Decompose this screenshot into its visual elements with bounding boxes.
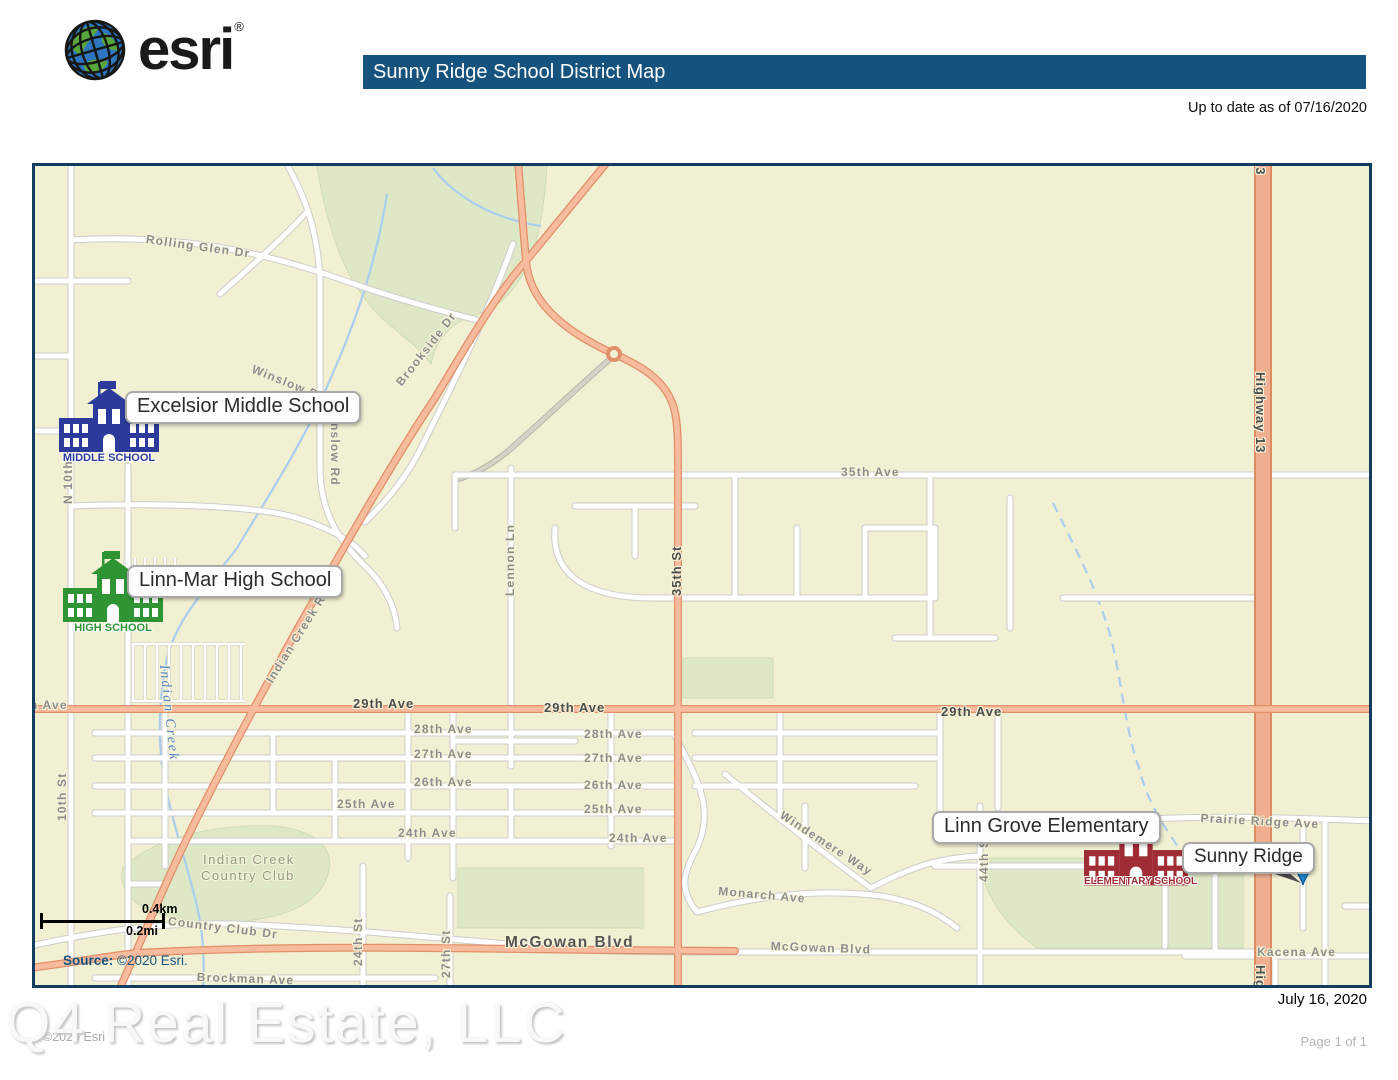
callout-linn-grove-elementary: Linn Grove Elementary <box>932 811 1161 844</box>
street-label: Kacena Ave <box>1257 945 1336 959</box>
esri-logo: esri® <box>60 12 360 88</box>
map-canvas: 29th AveRolling Glen DrWinslow RdWinslow… <box>32 163 1372 988</box>
street-label: 35th St <box>669 546 684 596</box>
street-label: 29th Ave <box>544 700 605 715</box>
watermark: Q4 Real Estate, LLC <box>6 990 567 1056</box>
street-label: Country Club <box>201 868 295 883</box>
street-label: 26th Ave <box>414 775 473 789</box>
street-label: Highway 13 <box>1253 965 1268 988</box>
street-label: Monarch Ave <box>718 884 807 906</box>
page-title: Sunny Ridge School District Map <box>363 55 1366 89</box>
street-label: 24th Ave <box>609 831 668 845</box>
scale-km-label: 0.4km <box>142 902 177 916</box>
callout-sunny-ridge: Sunny Ridge <box>1182 842 1315 874</box>
street-label: 29th Ave <box>353 696 414 711</box>
source-value: ©2020 Esri. <box>113 953 187 968</box>
street-label: 27th Ave <box>584 751 643 765</box>
street-label: 27th St <box>439 930 453 978</box>
street-label: Windemere Way <box>777 808 875 878</box>
street-label: 29th Ave <box>32 698 68 712</box>
title-bar: Sunny Ridge School District Map <box>363 55 1366 89</box>
updated-note: Up to date as of 07/16/2020 <box>1188 100 1367 116</box>
street-label: 25th Ave <box>584 802 643 816</box>
street-label: Brookside Dr <box>393 309 459 388</box>
street-label: Indian Creek <box>203 852 295 867</box>
street-label: Indian Creek Rd <box>263 585 333 685</box>
street-label: Highway 13 <box>1253 163 1268 176</box>
callout-excelsior-middle-school: Excelsior Middle School <box>125 391 361 424</box>
street-label: McGowan Blvd <box>771 939 872 956</box>
scale-bar-line <box>40 920 164 923</box>
street-label: 35th Ave <box>841 465 900 479</box>
school-type-label: MIDDLE SCHOOL <box>59 452 159 464</box>
street-label: 29th Ave <box>941 704 1002 719</box>
street-label: Lennon Ln <box>503 524 517 596</box>
street-label: 28th Ave <box>584 727 643 741</box>
esri-logo-text: esri <box>138 21 233 79</box>
street-label: Indian Creek <box>155 664 181 762</box>
street-label: Prairie Ridge Ave <box>1200 811 1319 831</box>
footer-date: July 16, 2020 <box>1278 991 1367 1008</box>
school-type-label: HIGH SCHOOL <box>63 622 163 634</box>
scale-mi-label: 0.2mi <box>126 924 158 938</box>
esri-globe-icon <box>60 15 130 85</box>
street-label: 24th Ave <box>398 826 457 840</box>
street-label: Country Club Dr <box>167 914 279 941</box>
street-label: 27th Ave <box>414 747 473 761</box>
street-label: 26th Ave <box>584 778 643 792</box>
street-label: Highway 13 <box>1253 372 1268 454</box>
street-label: Brockman Ave <box>197 970 295 987</box>
registered-mark: ® <box>234 19 244 34</box>
street-label: 28th Ave <box>414 722 473 736</box>
source-credit: Source: ©2020 Esri. <box>63 953 188 968</box>
street-label: McGowan Blvd <box>505 934 634 952</box>
school-type-label: ELEMENTARY SCHOOL <box>1084 876 1188 887</box>
street-label: Rolling Glen Dr <box>145 232 251 261</box>
document-page: esri® Sunny Ridge School District Map Up… <box>0 0 1398 1080</box>
source-label: Source: <box>63 953 113 968</box>
street-label: 25th Ave <box>337 797 396 811</box>
page-number: Page 1 of 1 <box>1301 1034 1368 1049</box>
scale-bar: 0.4km 0.2mi <box>40 912 164 938</box>
street-label: 24th St <box>351 918 365 966</box>
callout-linn-mar-high-school: Linn-Mar High School <box>127 565 343 598</box>
street-label: 10th St <box>55 773 69 821</box>
